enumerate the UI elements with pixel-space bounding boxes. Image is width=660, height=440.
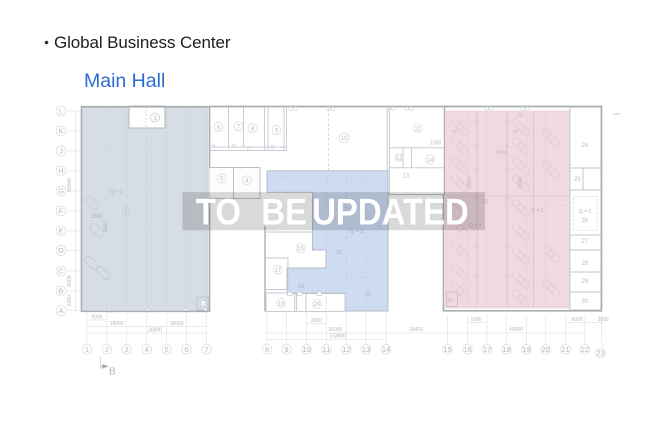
svg-text:C: C [58,267,64,276]
svg-text:Q = 3: Q = 3 [579,209,592,215]
svg-text:11: 11 [323,345,331,354]
svg-text:J: J [59,147,63,156]
svg-text:27: 27 [581,239,588,245]
svg-text:21: 21 [336,250,342,256]
svg-text:21: 21 [561,345,569,354]
svg-text:G: G [58,187,64,196]
svg-text:7: 7 [204,345,208,354]
svg-text:18400: 18400 [409,327,423,333]
svg-text:4: 4 [145,345,149,354]
svg-text:13: 13 [403,173,410,179]
svg-text:18000: 18000 [110,321,124,327]
svg-text:A: A [58,306,63,315]
svg-text:15: 15 [297,247,304,253]
svg-text:L: L [59,107,63,116]
svg-text:19: 19 [522,345,530,354]
svg-text:6000: 6000 [103,221,109,232]
svg-text:Global Business Center: Global Business Center [54,33,231,52]
svg-text:26: 26 [581,218,588,224]
svg-text:10: 10 [341,136,348,142]
svg-text:B: B [58,287,63,296]
svg-text:K: K [58,127,63,136]
svg-text:30: 30 [581,299,588,305]
svg-text:1: 1 [202,302,205,308]
svg-text:18: 18 [278,301,285,307]
svg-text:23: 23 [517,113,523,119]
svg-text:45°: 45° [452,129,459,134]
svg-text:12: 12 [396,156,403,162]
svg-text:8: 8 [265,345,269,354]
svg-text:TOBEUPDATED: TOBEUPDATED [196,192,469,233]
svg-text:Main Hall: Main Hall [84,70,165,92]
svg-text:6000: 6000 [518,177,524,188]
svg-text:1000: 1000 [496,150,507,156]
svg-text:45°: 45° [513,129,520,134]
svg-text:6000: 6000 [91,315,102,321]
svg-text:153800: 153800 [329,334,346,340]
svg-text:10: 10 [302,345,310,354]
svg-text:45000: 45000 [509,327,523,333]
svg-text:B: B [109,367,116,378]
svg-text:2: 2 [125,209,128,215]
svg-text:14: 14 [382,345,390,354]
svg-text:6000: 6000 [67,295,73,306]
svg-text:20: 20 [542,345,550,354]
svg-text:17: 17 [274,268,281,274]
svg-text:11: 11 [414,127,421,133]
svg-text:1000: 1000 [470,317,481,323]
svg-text:2000: 2000 [91,214,102,220]
svg-text:18: 18 [502,345,510,354]
svg-text:24: 24 [581,143,588,149]
svg-text:22: 22 [581,345,589,354]
svg-text:15: 15 [443,345,451,354]
svg-text:H: H [58,167,63,176]
svg-text:1000: 1000 [430,141,441,147]
svg-text:5: 5 [165,345,169,354]
svg-text:16: 16 [463,345,471,354]
svg-text:8: 8 [251,127,255,133]
svg-text:6000: 6000 [67,275,73,286]
svg-text:29: 29 [581,279,588,285]
svg-text:19: 19 [298,284,304,290]
svg-text:32: 32 [447,298,453,304]
svg-text:20: 20 [314,302,321,308]
svg-text:3: 3 [125,345,129,354]
svg-text:36000: 36000 [328,327,342,333]
svg-text:E: E [58,227,63,236]
svg-text:1: 1 [85,345,89,354]
svg-text:6000: 6000 [571,317,582,323]
svg-text:13: 13 [362,345,370,354]
svg-text:9: 9 [275,128,279,134]
svg-text:12: 12 [342,345,350,354]
svg-text:6: 6 [217,125,221,131]
svg-text:36000: 36000 [148,328,162,334]
svg-text:22: 22 [365,292,371,298]
svg-text:Q = 3: Q = 3 [531,208,544,214]
svg-text:F: F [59,207,64,216]
svg-text:60000: 60000 [67,178,73,192]
svg-text:18000: 18000 [170,321,184,327]
svg-text:3000: 3000 [597,317,608,323]
svg-text:2000: 2000 [311,318,322,324]
svg-text:7: 7 [237,125,241,131]
svg-text:D: D [58,246,64,255]
svg-text:6: 6 [184,345,188,354]
svg-text:6000: 6000 [467,177,473,188]
svg-text:28: 28 [581,261,588,267]
svg-text:9: 9 [285,345,289,354]
svg-text:25: 25 [574,177,581,183]
svg-text:17: 17 [483,345,491,354]
svg-text:2: 2 [105,345,109,354]
svg-text:23: 23 [596,349,604,358]
svg-text:Q + 3: Q + 3 [110,189,123,195]
svg-text:14: 14 [427,158,434,164]
